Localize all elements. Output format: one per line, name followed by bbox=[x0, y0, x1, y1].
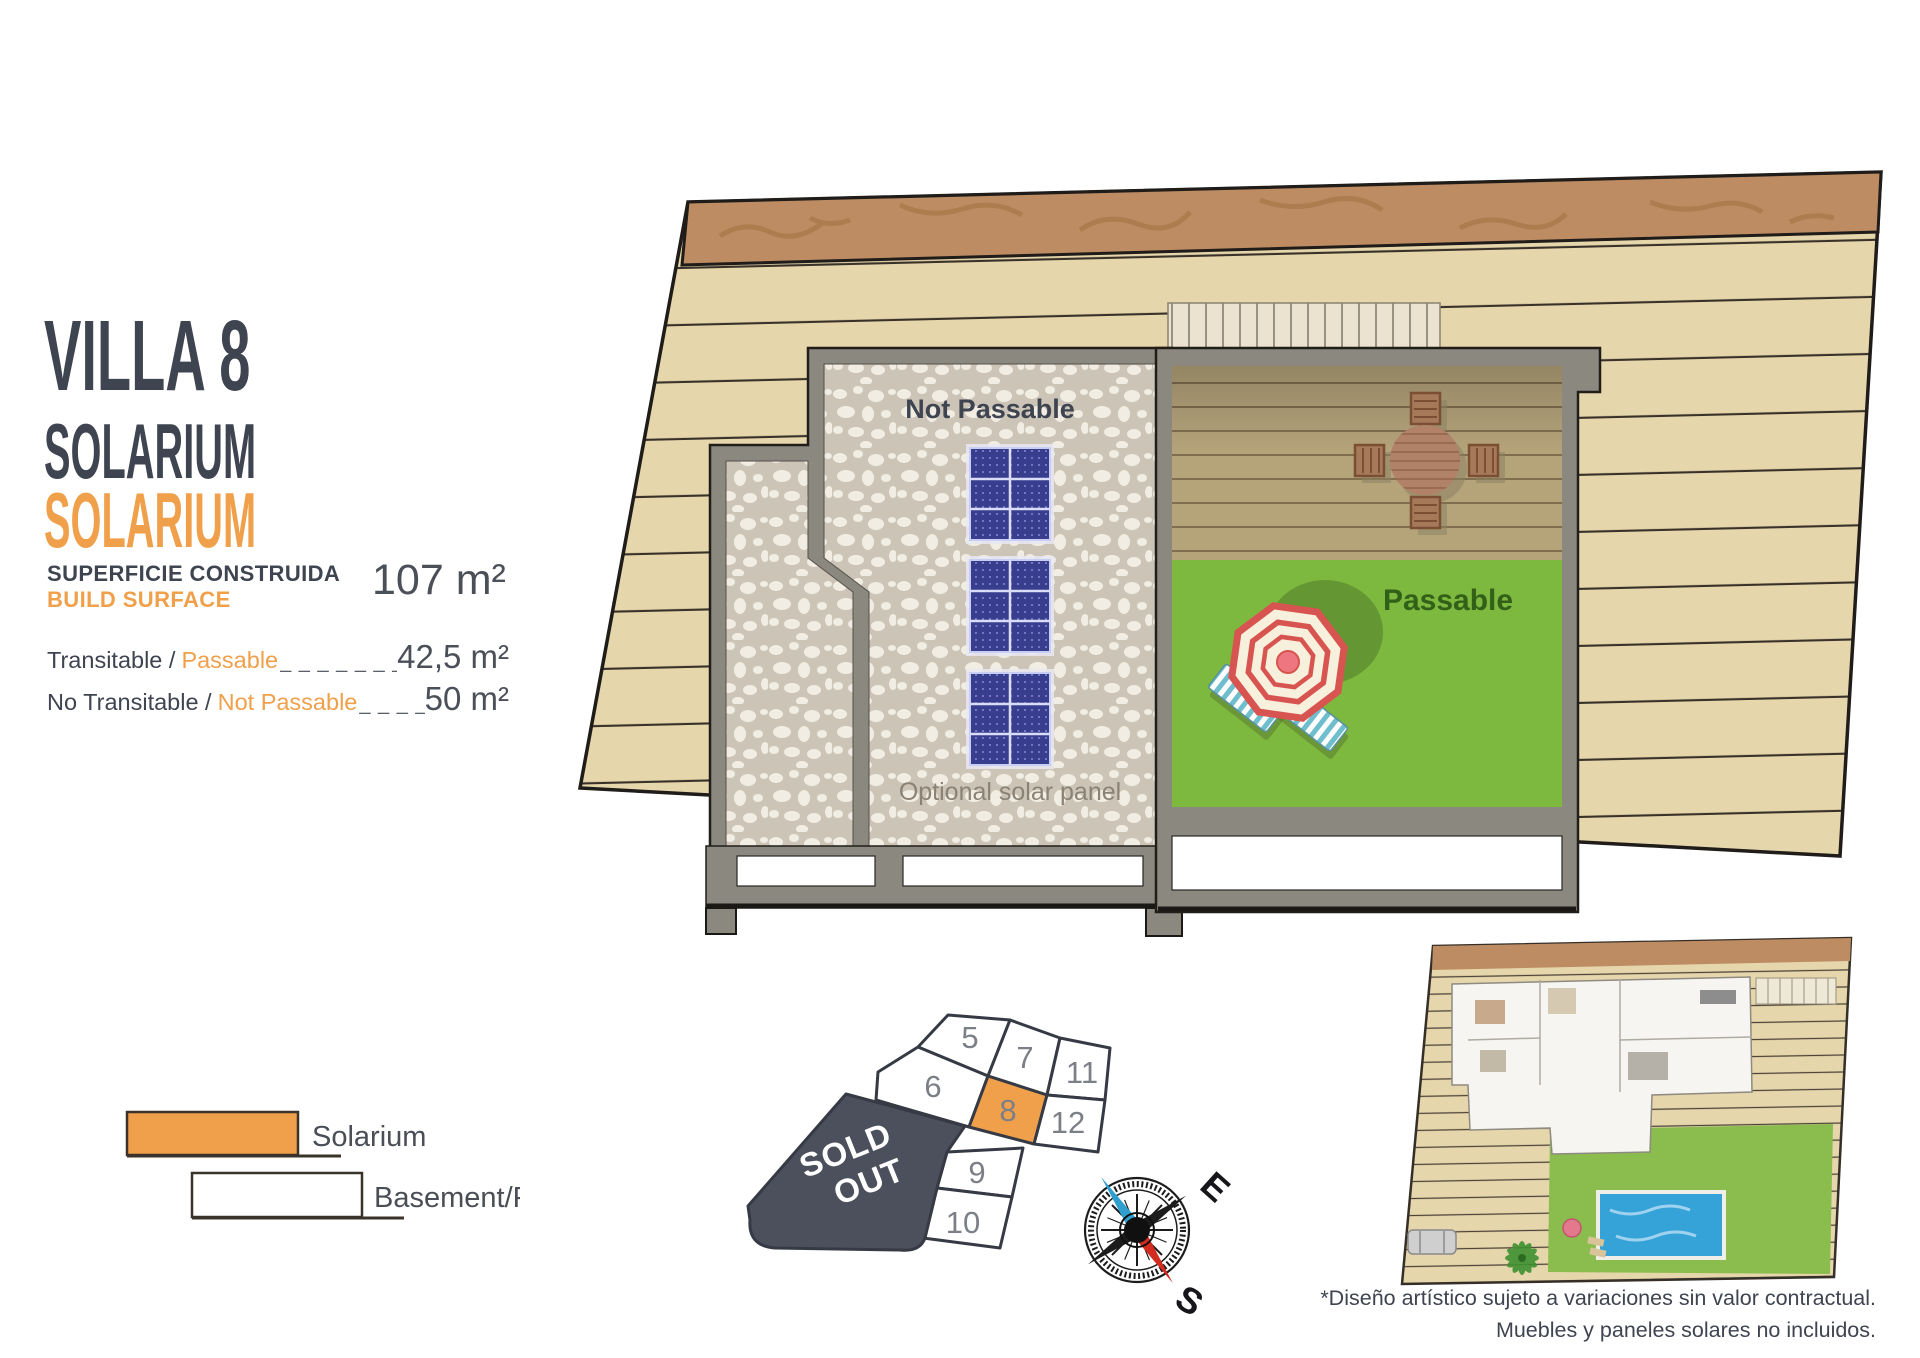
surface-label-es: SUPERFICIE CONSTRUIDA bbox=[47, 561, 340, 587]
chair-icon bbox=[1411, 497, 1440, 528]
chair-icon bbox=[1355, 445, 1384, 476]
basement-window bbox=[903, 856, 1143, 886]
legend-label-solarium: Solarium bbox=[312, 1121, 426, 1153]
leader-dashes: _ _ _ _ _ _ _ bbox=[280, 651, 397, 674]
bottom-wall-band bbox=[706, 846, 1182, 936]
solar-panel bbox=[966, 669, 1054, 769]
solarium-floor-plan: Not Passable Passable Optional solar pan… bbox=[530, 140, 1890, 940]
thumb-louvers bbox=[1756, 978, 1836, 1004]
basement-window bbox=[737, 856, 875, 886]
lot-number: 12 bbox=[1051, 1105, 1085, 1140]
thumb-pool bbox=[1598, 1192, 1724, 1258]
solar-panel bbox=[966, 556, 1054, 656]
passable-plan-label: Passable bbox=[1383, 584, 1513, 617]
thumb-car bbox=[1408, 1230, 1456, 1254]
passable-label-en: Passable bbox=[181, 647, 278, 674]
not-passable-label-es: No Transitable / bbox=[47, 689, 212, 716]
lot-number-highlighted: 8 bbox=[999, 1093, 1016, 1128]
passable-area-row: Transitable / Passable _ _ _ _ _ _ _ 42,… bbox=[47, 638, 509, 676]
disclaimer: *Diseño artístico sujeto a variaciones s… bbox=[1320, 1282, 1876, 1347]
chair-icon bbox=[1411, 393, 1440, 424]
page-subtitle-accent: SOLARIUM bbox=[44, 481, 256, 559]
lot-number: 5 bbox=[961, 1020, 978, 1055]
passable-label-es: Transitable / bbox=[47, 647, 175, 674]
leader-dashes: _ _ _ _ bbox=[359, 693, 424, 716]
page-title: VILLA 8 bbox=[44, 306, 250, 406]
passable-value: 42,5 m² bbox=[397, 638, 509, 676]
solar-panels bbox=[966, 444, 1054, 769]
solarium-swatch bbox=[127, 1112, 298, 1155]
lot-number: 9 bbox=[968, 1155, 985, 1190]
lot-number: 6 bbox=[924, 1069, 941, 1104]
site-plan: 5 7 11 6 8 12 9 10 SOLD OUT bbox=[600, 1005, 1290, 1345]
villa-thumbnail bbox=[1390, 925, 1860, 1295]
disclaimer-line1: *Diseño artístico sujeto a variaciones s… bbox=[1320, 1282, 1876, 1314]
chair-icon bbox=[1469, 445, 1498, 476]
wall-post bbox=[706, 908, 736, 934]
brochure-page: VILLA 8 SOLARIUM SOLARIUM SUPERFICIE CON… bbox=[0, 0, 1920, 1358]
compass-rose: E S bbox=[1084, 1163, 1238, 1324]
legend-item-solarium: Solarium bbox=[127, 1112, 426, 1156]
build-surface-value: 107 m² bbox=[372, 556, 506, 605]
compass-east-label: E bbox=[1193, 1163, 1238, 1210]
legend-label-basement: Basement/Pool bbox=[374, 1182, 520, 1214]
solar-panel bbox=[966, 444, 1054, 544]
optional-solar-panel-label: Optional solar panel bbox=[899, 778, 1121, 806]
not-passable-area-row: No Transitable / Not Passable _ _ _ _ 50… bbox=[47, 680, 509, 718]
disclaimer-line2: Muebles y paneles solares no incluidos. bbox=[1320, 1314, 1876, 1346]
lot-number: 10 bbox=[946, 1205, 980, 1240]
surface-label-en: BUILD SURFACE bbox=[47, 587, 231, 613]
compass-south-label: S bbox=[1169, 1277, 1211, 1324]
basement-swatch bbox=[192, 1173, 362, 1217]
legend-item-basement: Basement/Pool bbox=[192, 1173, 520, 1218]
lot-number: 11 bbox=[1066, 1055, 1098, 1090]
lot-number: 7 bbox=[1016, 1040, 1033, 1075]
not-passable-label-en: Not Passable bbox=[218, 689, 358, 716]
not-passable-plan-label: Not Passable bbox=[905, 394, 1075, 424]
not-passable-value: 50 m² bbox=[425, 680, 509, 718]
basement-window bbox=[1172, 836, 1562, 890]
legend: Solarium Basement/Pool bbox=[100, 1090, 520, 1240]
